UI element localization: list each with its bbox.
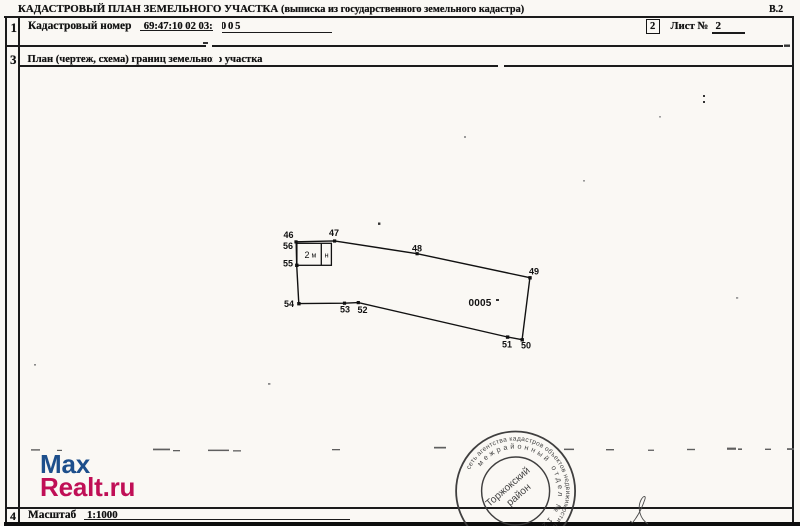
svg-text:49: 49: [529, 267, 539, 277]
svg-text:48: 48: [412, 244, 422, 254]
svg-text:46: 46: [284, 230, 294, 240]
svg-text:47: 47: [329, 228, 339, 238]
svg-text:н: н: [325, 251, 329, 260]
svg-text:54: 54: [284, 299, 294, 309]
svg-text:50: 50: [521, 341, 531, 351]
svg-text:55: 55: [283, 258, 293, 268]
svg-text:56: 56: [283, 241, 293, 251]
svg-text:52: 52: [358, 305, 368, 315]
svg-text:м: м: [312, 253, 317, 260]
svg-text:51: 51: [502, 340, 512, 350]
svg-text:2: 2: [305, 250, 310, 260]
svg-text:0005: 0005: [469, 298, 492, 309]
svg-text:53: 53: [340, 305, 350, 315]
